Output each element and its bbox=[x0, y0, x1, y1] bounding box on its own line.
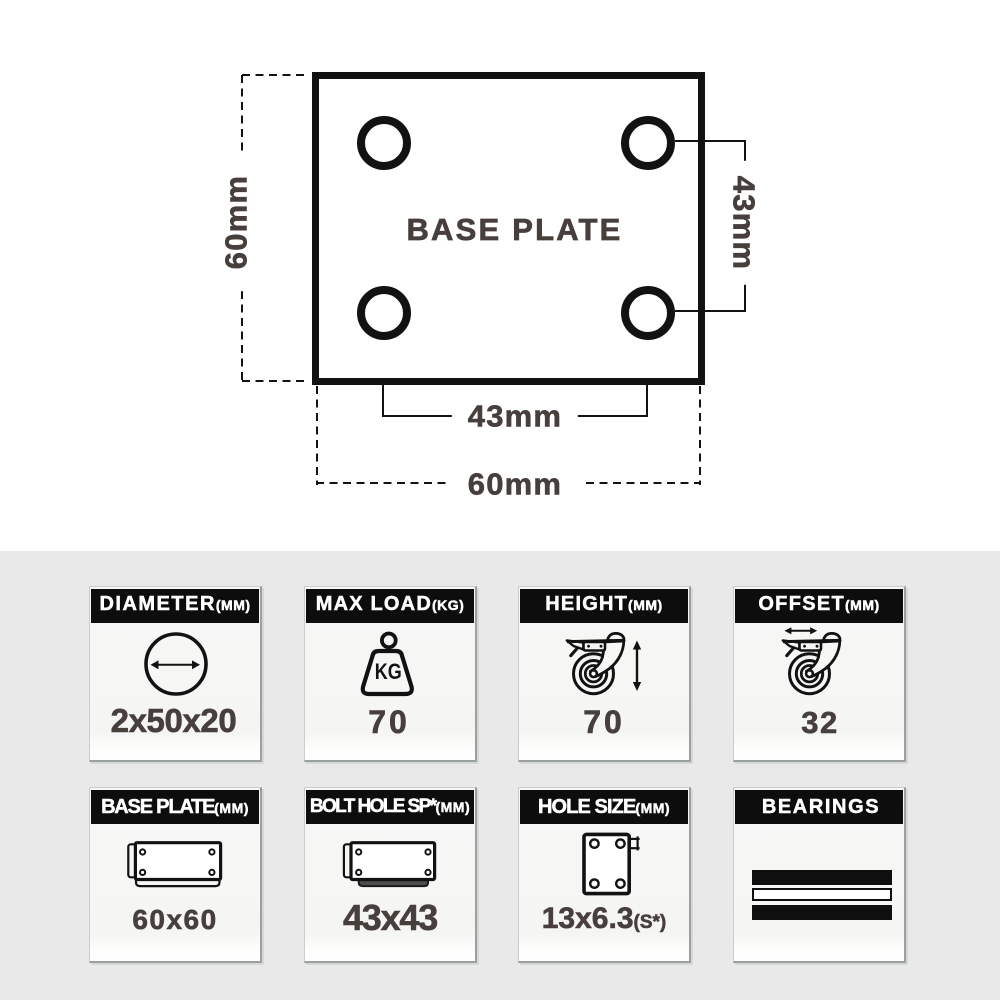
svg-text:KG: KG bbox=[375, 659, 402, 684]
